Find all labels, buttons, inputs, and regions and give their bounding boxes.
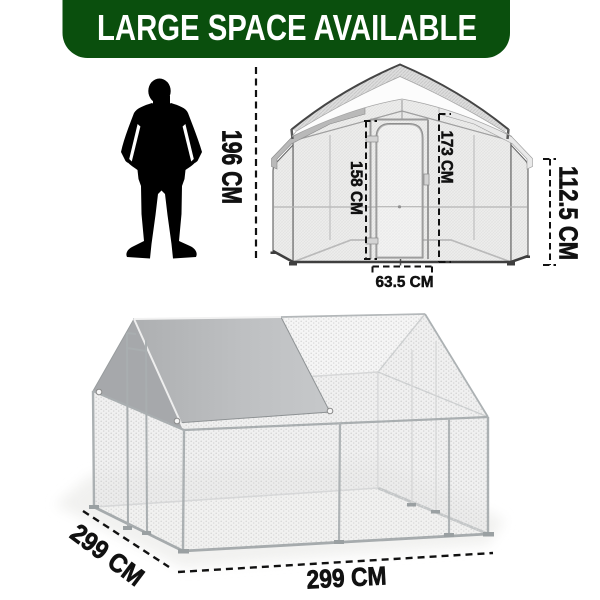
- svg-text:63.5 CM: 63.5 CM: [376, 274, 434, 291]
- svg-text:196 CM: 196 CM: [217, 130, 248, 204]
- svg-text:112.5 CM: 112.5 CM: [554, 166, 584, 260]
- svg-text:158 CM: 158 CM: [347, 161, 366, 215]
- svg-text:173 CM: 173 CM: [438, 131, 457, 184]
- svg-text:299 CM: 299 CM: [306, 560, 387, 594]
- svg-text:LARGE SPACE AVAILABLE: LARGE SPACE AVAILABLE: [97, 7, 477, 48]
